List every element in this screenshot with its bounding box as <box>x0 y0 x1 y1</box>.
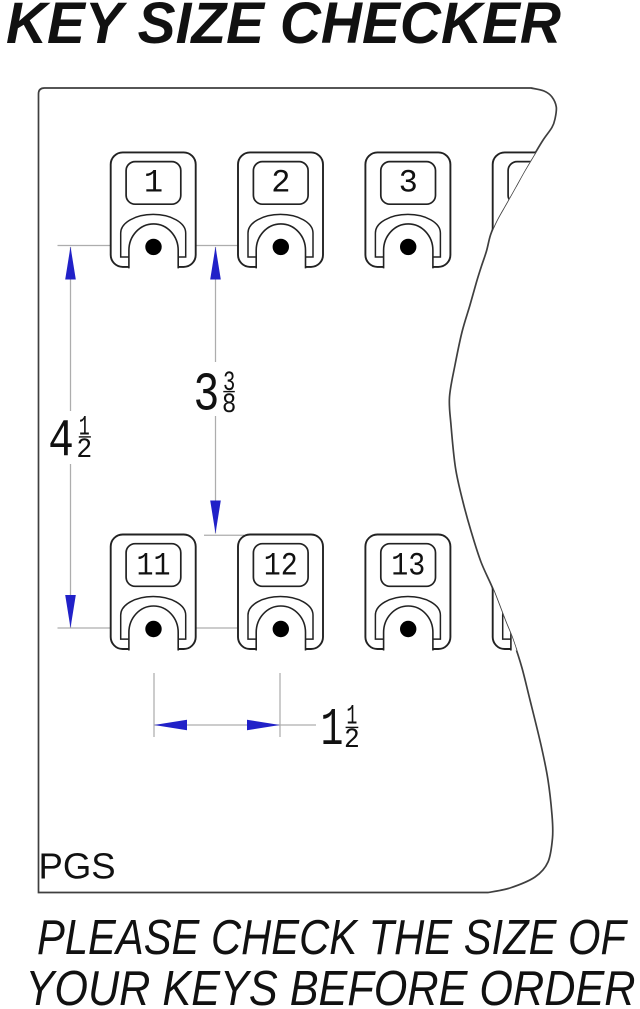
svg-text:2: 2 <box>344 725 360 756</box>
svg-text:2: 2 <box>76 435 92 466</box>
svg-text:YOUR KEYS BEFORE ORDER: YOUR KEYS BEFORE ORDER <box>26 962 636 1009</box>
svg-text:PGS: PGS <box>39 845 116 886</box>
svg-text:1: 1 <box>321 700 344 760</box>
svg-text:3: 3 <box>193 365 219 426</box>
svg-text:3: 3 <box>399 164 418 201</box>
svg-text:4: 4 <box>48 412 74 472</box>
svg-text:12: 12 <box>264 548 298 585</box>
svg-text:KEY SIZE CHECKER: KEY SIZE CHECKER <box>6 0 561 56</box>
svg-text:2: 2 <box>271 164 290 201</box>
svg-text:8: 8 <box>222 390 236 421</box>
svg-text:11: 11 <box>137 548 171 585</box>
svg-text:1: 1 <box>144 164 163 201</box>
svg-text:13: 13 <box>391 548 425 585</box>
svg-text:PLEASE CHECK THE SIZE OF: PLEASE CHECK THE SIZE OF <box>37 911 629 965</box>
